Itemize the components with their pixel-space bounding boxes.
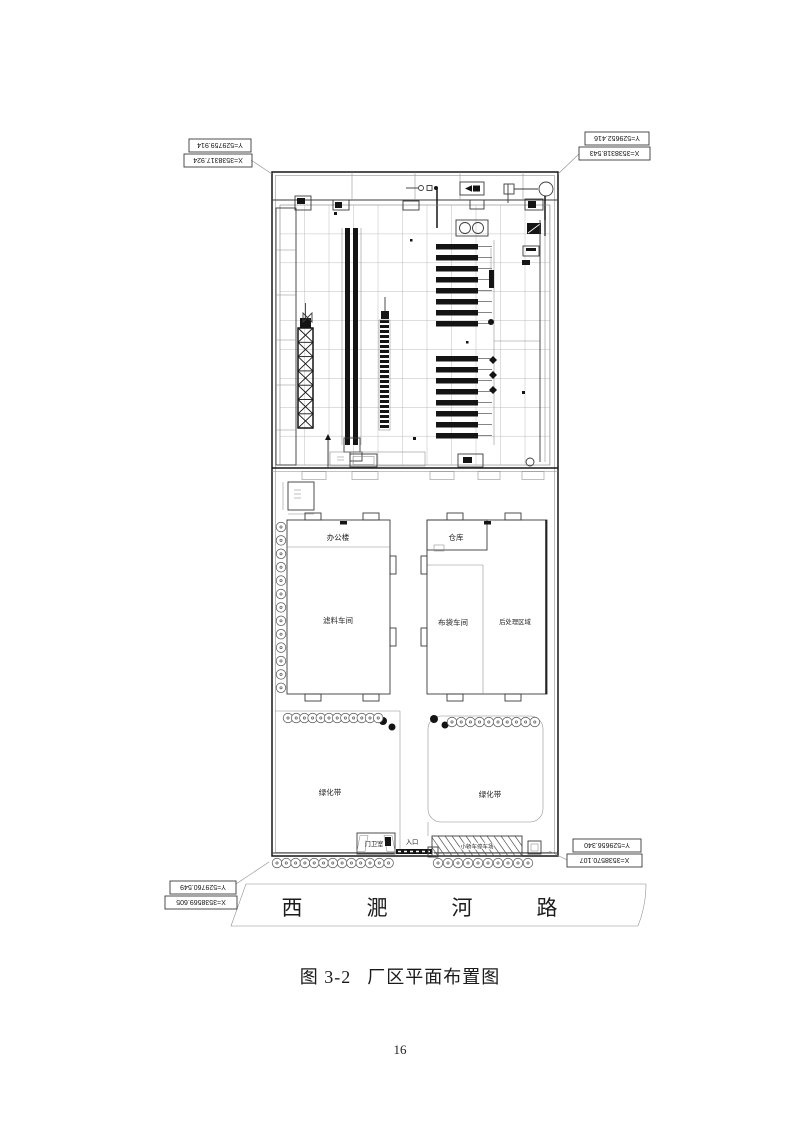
page-number: 16 <box>0 1042 800 1058</box>
site-boundary-wall <box>272 172 558 856</box>
green-areas: 绿化带 绿化带 <box>275 711 543 849</box>
tank-icon <box>460 223 471 234</box>
conveyor-line <box>353 228 358 445</box>
parking-label: 小轿车停车场 <box>460 843 494 851</box>
factory-top-strip <box>272 172 558 236</box>
guard-room-label: 门卫室 <box>365 839 384 848</box>
figure-caption-title: 厂区平面布置图 <box>367 967 500 987</box>
road-char: 西 <box>282 896 303 920</box>
entrance-gate <box>396 849 432 854</box>
document-page: 办公楼 滤料车间 仓库 布袋车间 后处理区域 绿化带 绿化带 <box>0 0 800 1132</box>
conveyor-line <box>345 228 350 445</box>
tank-icon <box>473 223 484 234</box>
x-coordinate-label: X=3538569.605 <box>176 898 226 905</box>
bag-workshop-building: 仓库 布袋车间 后处理区域 <box>421 513 547 701</box>
gate-area: 门卫室 入口 <box>357 833 432 854</box>
green-belt-right-label: 绿化带 <box>479 789 502 799</box>
y-coordinate-label: Y=529760.549 <box>180 883 226 890</box>
y-coordinate-label: Y=529759.914 <box>197 141 243 148</box>
annex-structure <box>283 482 314 514</box>
bag-workshop-label: 布袋车间 <box>438 617 468 627</box>
site-plan-figure: 办公楼 滤料车间 仓库 布袋车间 后处理区域 绿化带 绿化带 <box>0 0 800 960</box>
filter-workshop-label: 滤料车间 <box>323 615 353 625</box>
x-coordinate-label: X=3538318.543 <box>590 149 640 156</box>
figure-caption-label: 图 3-2 <box>300 967 352 987</box>
x-coordinate-label: X=3538317.924 <box>193 156 243 163</box>
road-char: 淝 <box>367 896 388 920</box>
x-coordinate-label: X=3538570.107 <box>580 856 630 863</box>
entrance-label: 入口 <box>406 838 419 846</box>
pipe-fitting-icon <box>419 186 424 191</box>
machine-rows <box>436 244 492 439</box>
road-char: 河 <box>452 896 473 920</box>
coordinate-callout-bottom-right: Y=529656.340 X=3538570.107 <box>549 839 642 867</box>
shrub-icon <box>430 715 438 723</box>
office-filter-building: 办公楼 滤料车间 <box>287 513 396 701</box>
figure-caption: 图 3-2厂区平面布置图 <box>0 963 800 989</box>
shrub-icon <box>389 724 396 731</box>
column-grid <box>280 205 550 465</box>
parking-area: 小轿车停车场 <box>424 836 541 857</box>
green-belt-left-label: 绿化带 <box>319 787 342 797</box>
tank-icon <box>539 182 553 196</box>
tree-rows <box>272 522 539 868</box>
road: 西 淝 河 路 <box>231 884 646 926</box>
coordinate-callout-top-left: Y=529759.914 X=3538317.924 <box>184 139 272 174</box>
factory-workshop-area <box>276 196 550 480</box>
warehouse-label: 仓库 <box>449 532 464 542</box>
y-coordinate-label: Y=529656.340 <box>584 841 630 848</box>
post-processing-label: 后处理区域 <box>499 617 531 626</box>
coordinate-callout-bottom-left: Y=529760.549 X=3538569.605 <box>165 862 269 909</box>
truss-tower <box>298 328 313 428</box>
coordinate-callout-top-right: Y=529652.416 X=3538318.543 <box>558 132 650 174</box>
y-coordinate-label: Y=529652.416 <box>594 134 640 141</box>
office-label: 办公楼 <box>327 532 350 542</box>
road-char: 路 <box>537 896 558 920</box>
